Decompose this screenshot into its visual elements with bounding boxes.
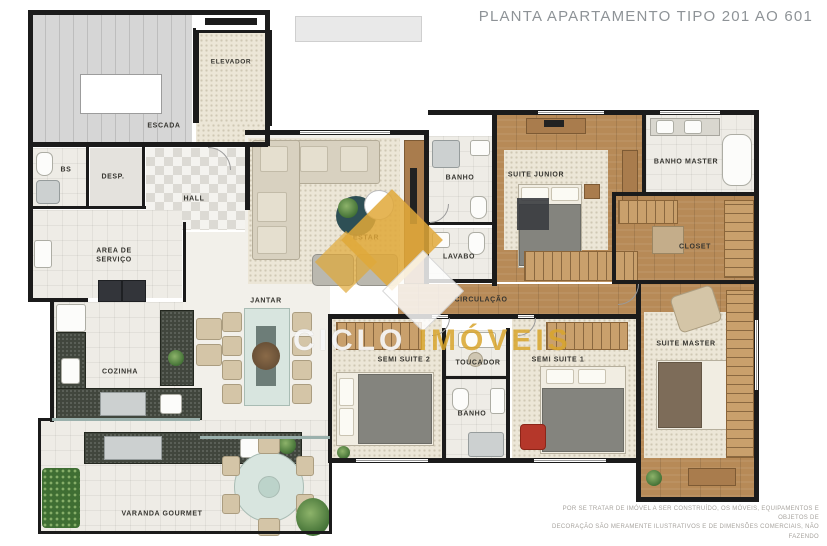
stove [100,392,146,416]
wall [506,328,510,460]
elevator-lintel [205,18,257,25]
window [538,111,604,114]
wall [38,418,41,534]
shower-tray [468,432,504,457]
dining-chair [292,360,312,380]
pillow [551,187,579,201]
dining-chair [292,384,312,404]
floor-plan-canvas: ESCADA ELEVADOR HALL BS DESP. AREA DE SE… [0,0,827,546]
dining-chair [222,336,242,356]
wall [328,314,640,319]
sink [656,120,674,134]
label-toucador: TOUCADOR [455,360,500,367]
pouf [312,254,354,286]
label-estar: ESTAR [353,235,379,242]
wardrobe [524,251,638,281]
centerpiece [252,342,280,370]
wall-shelf [726,290,754,458]
glass-door [200,436,330,439]
dining-chair [222,360,242,380]
label-suite-master: SUITE MASTER [656,341,715,348]
disclaimer-line-1: POR SE TRATAR DE IMÓVEL A SER CONSTRUÍDO… [539,505,819,524]
chair [222,494,240,514]
sofa-cushion [260,146,288,172]
label-banho-master: BANHO MASTER [654,159,718,166]
pillow [546,369,574,384]
washer [98,280,122,302]
wall [86,147,89,209]
wall [28,206,146,209]
fridge [56,304,86,332]
label-semi-suite-2: SEMI SUITE 2 [378,357,431,364]
stool [196,344,222,366]
room-elevador [196,30,272,126]
label-varanda-gourmet: VARANDA GOURMET [122,511,203,518]
technical-area [295,16,422,42]
label-closet: CLOSET [679,244,711,251]
label-semi-suite-1: SEMI SUITE 1 [532,357,585,364]
disclaimer-line-2: DECORAÇÃO SÃO MERAMENTE ILUSTRATIVOS E D… [539,523,819,542]
toilet [452,388,469,411]
red-armchair [520,424,546,450]
dining-chair [222,384,242,404]
pillow [578,369,606,384]
chair [222,456,240,476]
wall [442,328,446,460]
closet-shelf [618,200,678,224]
sofa-cushion [257,226,287,254]
toilet [468,232,485,255]
label-banho-semi: BANHO [458,411,487,418]
wall [183,222,186,302]
window [660,111,720,114]
toilet [470,196,487,219]
wall [50,300,54,422]
side-table [364,190,394,220]
blanket [658,362,702,428]
wall [612,192,758,196]
wall [38,531,332,534]
blanket [358,374,432,444]
closet-shelf [724,200,754,278]
monitor [544,120,564,127]
glass-door [52,418,200,421]
table-centerpiece [258,476,280,498]
room-circulacao [398,284,640,315]
wall [754,110,759,502]
pillow [339,378,354,406]
kitchen-sink [61,358,80,384]
label-cozinha: COZINHA [102,369,138,376]
dryer [122,280,146,302]
vanity [458,332,496,348]
stair-landing [80,74,162,114]
chair [296,456,314,476]
planter-hedge [42,468,80,528]
plant [646,470,662,486]
wall [426,222,492,225]
bathtub [722,134,752,186]
label-circulacao: CIRCULAÇÃO [454,297,507,304]
label-desp: DESP. [101,174,124,181]
label-banho-servico: BS [61,167,72,174]
wall [193,28,196,123]
kitchen-sink-2 [160,394,182,414]
wall [28,298,88,302]
wall [642,110,646,196]
wall [328,314,332,462]
nightstand [584,184,600,199]
wall [636,497,759,502]
window [300,131,390,134]
wall [424,134,429,284]
wardrobe [546,322,628,350]
window [755,320,758,390]
plant [338,198,358,218]
stool [196,318,222,340]
tv [410,168,417,224]
wardrobe [336,322,422,350]
dining-chair [292,336,312,356]
plant [168,350,184,366]
dining-chair [222,312,242,332]
sink [490,388,505,414]
wall [612,192,616,284]
pouf [356,254,398,286]
kitchen-peninsula [160,310,194,386]
wall [426,279,492,283]
blanket [542,388,624,452]
wall [142,147,145,209]
wall [28,10,270,15]
wall [492,110,497,286]
wall [28,142,268,147]
pillow [339,408,354,436]
grill [104,436,162,460]
laundry-sink [34,240,52,268]
bench [688,468,736,486]
window [356,459,428,462]
sink [684,120,702,134]
label-area-servico: AREA DE SERVIÇO [91,247,137,266]
label-elevador: ELEVADOR [211,59,251,66]
sofa-cushion [300,146,328,172]
shower-tray [432,140,460,168]
window [534,459,606,462]
label-escada: ESCADA [147,123,180,130]
sink [470,140,490,156]
label-banho-social: BANHO [446,175,475,182]
toilet [36,152,53,176]
sofa-cushion [257,192,287,222]
dining-chair [292,312,312,332]
page-title: PLANTA APARTAMENTO TIPO 201 AO 601 [479,8,813,25]
wall [28,10,33,302]
disclaimer: POR SE TRATAR DE IMÓVEL A SER CONSTRUÍDO… [539,505,819,542]
label-lavabo: LAVABO [443,254,475,261]
sofa-cushion [340,146,368,172]
label-hall: HALL [183,196,204,203]
label-suite-junior: SUITE JUNIOR [508,172,564,179]
wall [245,146,250,210]
sink [432,232,450,248]
wall [444,376,508,379]
pillow [521,187,549,201]
shower-tray [36,180,60,204]
wall [265,10,270,146]
label-jantar: JANTAR [250,298,281,305]
